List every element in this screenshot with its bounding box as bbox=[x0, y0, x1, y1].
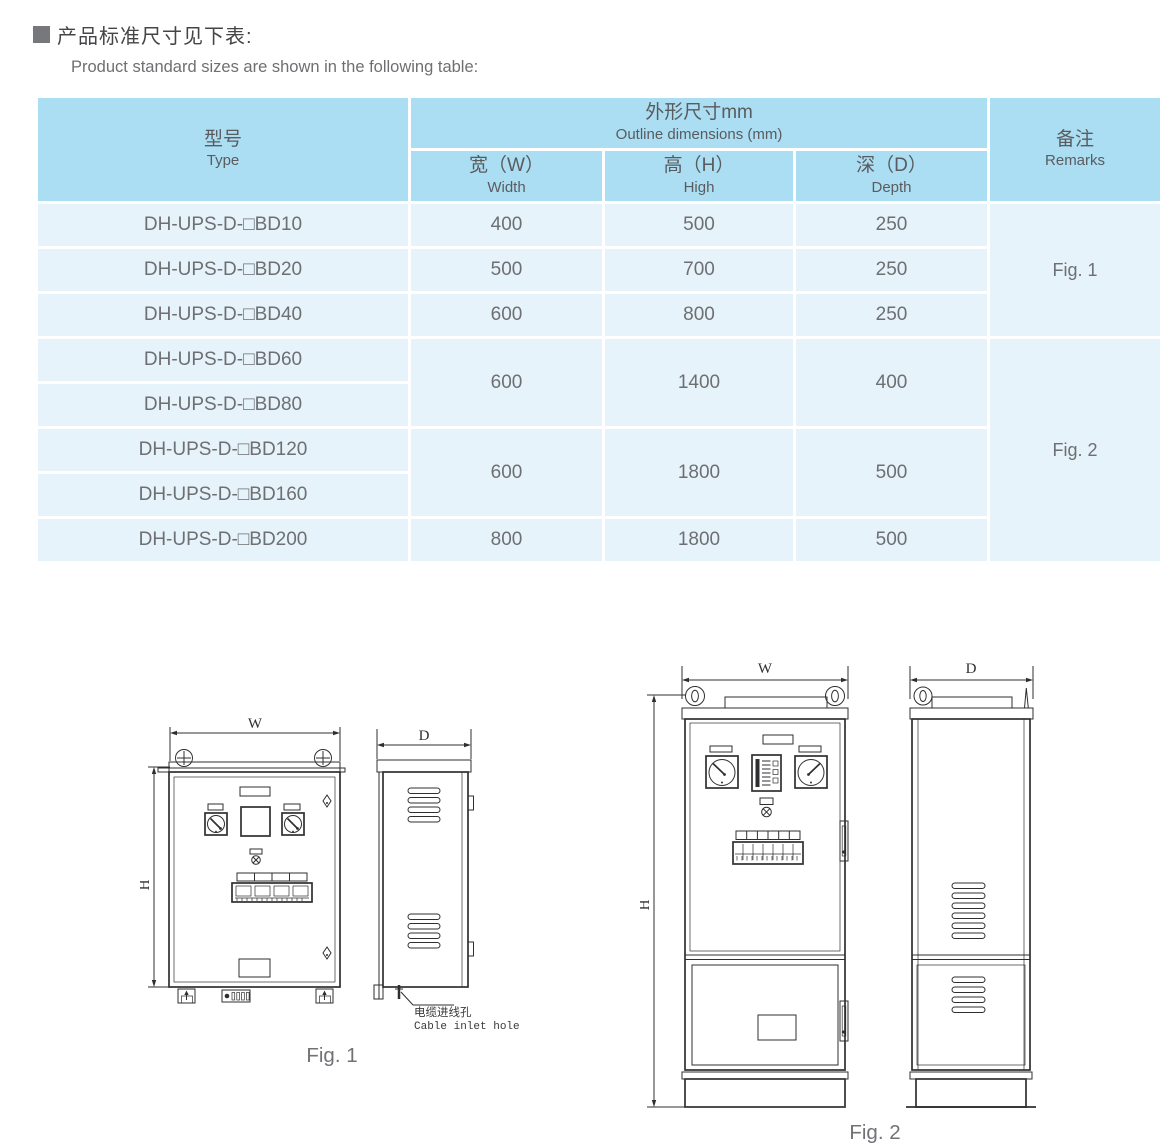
table-head: 型号 Type 外形尺寸mm Outline dimensions (mm) 备… bbox=[37, 97, 1162, 203]
high-cell: 500 bbox=[604, 203, 795, 248]
fig1-dim-d-label: D bbox=[419, 728, 430, 744]
type-header-en: Type bbox=[38, 152, 408, 170]
remarks-column-header: 备注 Remarks bbox=[989, 97, 1162, 203]
fig1-front-view bbox=[148, 727, 345, 1003]
high-header-en: High bbox=[605, 179, 793, 197]
doc-header: 产品标准尺寸见下表: Product standard sizes are sh… bbox=[33, 20, 478, 77]
model-cell: DH-UPS-D-□BD200 bbox=[37, 518, 410, 563]
depth-cell: 400 bbox=[795, 338, 989, 428]
high-cell: 1400 bbox=[604, 338, 795, 428]
width-cell: 500 bbox=[410, 248, 604, 293]
page-root: 产品标准尺寸见下表: Product standard sizes are sh… bbox=[0, 0, 1176, 1148]
section-subtitle-en: Product standard sizes are shown in the … bbox=[71, 58, 478, 77]
depth-cell: 250 bbox=[795, 203, 989, 248]
fig2-dim-d-label: D bbox=[966, 661, 977, 677]
fig1-dim-h-label: H bbox=[140, 879, 153, 890]
type-header-zh: 型号 bbox=[38, 129, 408, 152]
fig2-front-view bbox=[647, 666, 848, 1107]
section-bullet-icon bbox=[33, 26, 50, 43]
high-cell: 1800 bbox=[604, 428, 795, 518]
high-header-zh: 高（H） bbox=[605, 155, 793, 178]
width-column-header: 宽（W） Width bbox=[410, 150, 604, 203]
width-cell: 600 bbox=[410, 338, 604, 428]
table-row: DH-UPS-D-□BD10 400 500 250 Fig. 1 bbox=[37, 203, 1162, 248]
width-cell: 400 bbox=[410, 203, 604, 248]
cable-inlet-note-zh: 电缆进线孔 bbox=[414, 1005, 472, 1019]
model-cell: DH-UPS-D-□BD80 bbox=[37, 383, 410, 428]
model-cell: DH-UPS-D-□BD60 bbox=[37, 338, 410, 383]
depth-cell: 250 bbox=[795, 248, 989, 293]
width-header-zh: 宽（W） bbox=[411, 155, 602, 178]
outline-header-zh: 外形尺寸mm bbox=[411, 102, 987, 125]
fig2-drawing: W H D Fig. 2 bbox=[640, 655, 1050, 1148]
model-cell: DH-UPS-D-□BD10 bbox=[37, 203, 410, 248]
remarks-header-zh: 备注 bbox=[990, 129, 1160, 152]
depth-cell: 500 bbox=[795, 518, 989, 563]
remarks-cell-fig1: Fig. 1 bbox=[989, 203, 1162, 338]
type-column-header: 型号 Type bbox=[37, 97, 410, 203]
outline-header-en: Outline dimensions (mm) bbox=[411, 126, 987, 144]
width-cell: 600 bbox=[410, 428, 604, 518]
fig1-drawing: W H D 电缆进线孔 Cable inlet hole Fig. 1 bbox=[140, 715, 540, 1080]
fig2-dim-w-label: W bbox=[758, 661, 773, 677]
high-cell: 1800 bbox=[604, 518, 795, 563]
depth-header-zh: 深（D） bbox=[796, 155, 987, 178]
model-cell: DH-UPS-D-□BD40 bbox=[37, 293, 410, 338]
figure-2: W H D Fig. 2 bbox=[640, 655, 1050, 1148]
fig2-caption: Fig. 2 bbox=[849, 1121, 900, 1144]
width-header-en: Width bbox=[411, 179, 602, 197]
width-cell: 800 bbox=[410, 518, 604, 563]
model-cell: DH-UPS-D-□BD120 bbox=[37, 428, 410, 473]
table-body: DH-UPS-D-□BD10 400 500 250 Fig. 1 DH-UPS… bbox=[37, 203, 1162, 563]
high-cell: 800 bbox=[604, 293, 795, 338]
model-cell: DH-UPS-D-□BD160 bbox=[37, 473, 410, 518]
width-cell: 600 bbox=[410, 293, 604, 338]
section-title-zh: 产品标准尺寸见下表: bbox=[57, 20, 253, 49]
fig1-dim-w-label: W bbox=[248, 716, 263, 732]
depth-cell: 500 bbox=[795, 428, 989, 518]
high-cell: 700 bbox=[604, 248, 795, 293]
table-row: DH-UPS-D-□BD60 600 1400 400 Fig. 2 bbox=[37, 338, 1162, 383]
dimensions-table: 型号 Type 外形尺寸mm Outline dimensions (mm) 备… bbox=[35, 95, 1163, 564]
outline-column-header: 外形尺寸mm Outline dimensions (mm) bbox=[410, 97, 989, 150]
depth-column-header: 深（D） Depth bbox=[795, 150, 989, 203]
fig2-dim-h-label: H bbox=[640, 899, 653, 910]
fig2-side-view bbox=[906, 666, 1036, 1107]
fig1-side-view bbox=[374, 729, 474, 1005]
fig1-caption: Fig. 1 bbox=[306, 1044, 357, 1067]
figure-1: W H D 电缆进线孔 Cable inlet hole Fig. 1 bbox=[140, 715, 540, 1080]
remarks-cell-fig2: Fig. 2 bbox=[989, 338, 1162, 563]
depth-cell: 250 bbox=[795, 293, 989, 338]
high-column-header: 高（H） High bbox=[604, 150, 795, 203]
cable-inlet-note-en: Cable inlet hole bbox=[414, 1021, 520, 1033]
remarks-header-en: Remarks bbox=[990, 152, 1160, 170]
depth-header-en: Depth bbox=[796, 179, 987, 197]
model-cell: DH-UPS-D-□BD20 bbox=[37, 248, 410, 293]
